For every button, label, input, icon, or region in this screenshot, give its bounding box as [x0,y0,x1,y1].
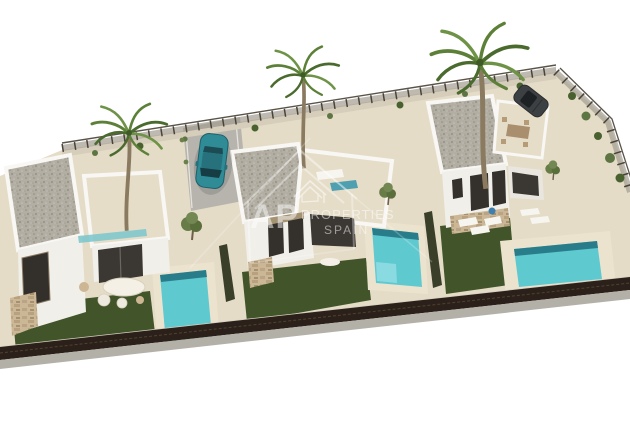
villa-render-scene: AP PROPERTIES SPAIN [0,0,630,423]
villa-right-window-3 [492,170,506,206]
villa-left-gravel-roof [6,155,82,250]
render-image: AP PROPERTIES SPAIN [0,0,630,423]
watermark-brand-name: PROPERTIES [301,207,395,222]
villa-middle-patio-bench [320,258,340,266]
watermark-brand-region: SPAIN [324,223,369,237]
villa-right-window-1 [452,178,463,199]
watermark-brand-initials: AP [250,198,299,236]
villa-middle-pool-step [376,262,397,283]
